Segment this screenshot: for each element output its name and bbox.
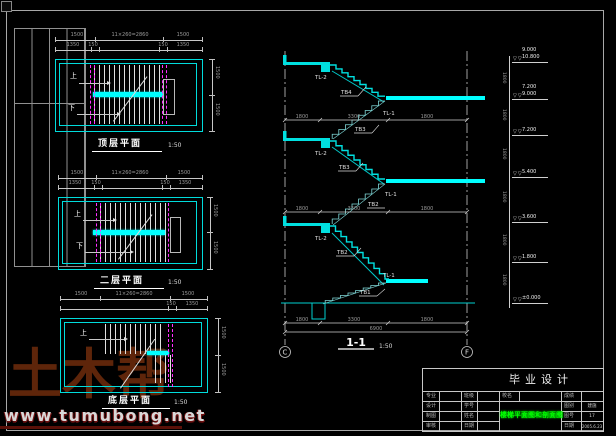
flight-label-leader [377,289,385,296]
foundation-pedestal [312,303,325,319]
dim-tick [215,318,221,319]
field-label: 审核 [426,424,436,429]
level-step-dim: 1800 [501,274,506,285]
field-label: 日期 [464,424,474,429]
title-block-line [461,391,462,431]
dim-text: 1500 [220,363,225,376]
field-label: 学号 [464,404,474,409]
stair-rail-outline [163,79,175,115]
axis-line-magenta [168,324,169,387]
level-marker-line [512,177,548,178]
stair-flight-cut [330,65,385,96]
field-label: 专业 [426,394,436,399]
dim-text: 1500 [66,292,96,297]
flight-label: TB2 [367,202,379,208]
axis-line-magenta [172,324,173,387]
dim-text: 1500 [220,326,225,339]
up-arrow-head [107,81,111,85]
stair-landing-bar [93,92,163,97]
dim-tick [60,306,61,311]
dim-text: 1500 [168,33,198,38]
cad-drawing-canvas: 土木帮 上 下 1500 11×260=2860 1500 1350 150 1… [0,0,616,436]
dim-text: 1800 [421,206,434,212]
dim-tick [215,392,221,393]
landing-slab [386,96,485,100]
dim-line [60,309,208,310]
level-marker-line [512,262,548,263]
axis-line-magenta [168,203,169,262]
stair-rail-outline [170,217,181,253]
level-value: 1.800 [522,255,536,260]
floor-slab [283,138,330,148]
stair-treads-lower [155,355,173,383]
section-dim-bottom [283,321,469,325]
dim-text: 1800 [421,114,434,120]
field-value: 建施 [582,404,602,409]
dim-text: 6900 [370,326,383,332]
flight-label: TB4 [340,90,352,96]
flight-label: TB2 [336,250,348,256]
stair-stringer [323,283,386,304]
field-label: 班级 [464,394,474,399]
watermark-underline [0,426,182,429]
plan-scale: 1:50 [168,143,181,149]
plan-scale: 1:50 [168,280,181,286]
dim-text: 1500 [212,204,217,217]
dim-text: 1800 [296,114,309,120]
stair-landing-bar [93,230,165,235]
field-label: 图别 [564,404,574,409]
plan-ground-floor: 上 [60,318,208,393]
level-marker-line [512,303,548,304]
plan-title: 二层平面 [100,277,144,286]
dim-tick [209,59,215,60]
up-label: 上 [74,211,81,218]
level-step-dim: 1800 [501,72,506,83]
floor-slab-stub [283,216,287,223]
dim-text: 1350 [58,43,88,48]
flight-label: TB3 [354,127,366,133]
dim-line [58,178,203,179]
dim-line [60,299,208,300]
level-marker-line [512,135,548,136]
dim-tick [58,185,59,190]
dim-line [58,188,203,189]
plan-title-underline [94,288,164,289]
grid-bubble-right-label: F [465,349,469,357]
section-dim-mid [283,210,469,214]
dim-tick [209,131,215,132]
dim-text: 1500 [214,103,219,116]
level-value-upper: 7.200 [522,85,536,90]
stair-soffit [332,233,384,285]
ucs-corner-icon [1,1,12,12]
level-step-dim: 1800 [501,234,506,245]
title-block-line [439,391,440,431]
dim-line [55,40,203,41]
axis-line-magenta [96,203,97,262]
up-arrow-line [89,339,124,340]
dim-text: 1500 [62,33,92,38]
plan-title: 底层平面 [108,397,152,406]
field-value: 17 [582,414,602,419]
title-block-line [477,391,478,431]
dim-text: 1800 [296,206,309,212]
level-value: 10.800 [522,55,540,60]
dim-tick [55,47,56,52]
level-value: 3.600 [522,215,536,220]
dim-text: 150 [86,43,100,48]
dim-tick [202,175,203,180]
dim-text: 150 [89,181,103,186]
stair-flight-cut [330,141,385,179]
floor-slab [283,223,330,233]
up-arrow-line [79,83,107,84]
floor-slab-stub [283,55,287,62]
plan-second-floor: 上 下 [58,197,203,270]
up-arrow-line [83,220,113,221]
dim-tick [58,175,59,180]
dim-text: 1500 [170,171,198,176]
dim-text: 1500 [212,241,217,254]
dim-text: 1500 [173,292,203,297]
dim-tick [215,355,221,356]
down-label: 下 [76,243,83,250]
dim-text: 1350 [178,302,206,307]
dim-tick [100,296,101,301]
level-value: ±0.000 [522,296,541,301]
dim-tick [209,95,215,96]
elevation-axis-line [509,56,510,308]
floor-slab-stub [283,131,287,138]
dim-text: 1800 [296,317,309,323]
level-marker-line [512,62,548,63]
dim-tick [202,185,203,190]
title-block-line [561,411,603,412]
dim-tick [207,197,213,198]
beam-label: TL-2 [314,236,327,242]
dim-tick [207,296,208,301]
dim-text: 1500 [214,66,219,79]
down-label: 下 [68,105,75,112]
level-value: 7.200 [522,128,536,133]
dim-text: 1500 [62,171,92,176]
beam-label: TL-1 [382,273,395,279]
field-label: 图号 [564,414,574,419]
dim-text: 3300 [348,114,361,120]
axis-line-magenta [94,65,95,124]
level-step-dim: 1800 [501,191,506,202]
flight-label-leader [372,125,379,133]
up-arrow-head [124,337,128,341]
dim-tick [202,37,203,42]
title-block-line [423,391,603,392]
dim-tick [207,306,208,311]
plan-title: 顶层平面 [98,140,142,149]
dim-tick [207,269,213,270]
field-value: 2005.6.23 [581,424,603,429]
up-label: 上 [70,73,77,80]
field-label: 制图 [426,414,436,419]
title-block-line [423,401,603,402]
watermark-url: www.tumubong.net [4,407,206,425]
dim-text: 150 [164,302,178,307]
dim-text: 3300 [348,317,361,323]
beam-label: TL-2 [314,75,327,81]
beam-label: TL-2 [314,151,327,157]
dim-text: 1800 [421,317,434,323]
stair-section-1-1: C F TL-2 TL-2 TL-2 TL-1 T [275,45,487,363]
level-marker-line [512,99,548,100]
dim-text: 11×260=2860 [104,292,164,297]
stair-soffit [332,71,384,102]
field-label: 设计 [426,404,436,409]
axis-line-magenta [100,203,101,262]
grid-bubble-left-label: C [283,349,288,357]
dim-text: 11×260=2860 [100,171,160,176]
dim-tick [207,232,213,233]
beam-label: TL-1 [382,111,395,117]
drawing-name: 楼梯平面图和剖面图 [500,411,560,419]
dim-text: 1350 [170,181,200,186]
beam-label: TL-1 [384,192,397,198]
flight-label: TB1 [359,290,371,296]
floor-slab [283,62,330,72]
flight-label: TB3 [338,165,350,171]
title-block-line [561,421,603,422]
up-label: 上 [80,330,87,337]
landing-slab [386,179,485,183]
field-label: 日期 [564,424,574,429]
title-block-line [519,391,520,401]
down-arrow-head [130,250,134,254]
axis-line-magenta [90,65,91,124]
dim-text: 1350 [60,181,90,186]
dim-tick [60,296,61,301]
dim-tick [55,37,56,42]
section-scale: 1:50 [379,343,393,350]
level-marker-line [512,222,548,223]
dim-text: 1350 [168,43,198,48]
down-arrow-line [77,114,117,115]
dim-text: 3300 [348,206,361,212]
level-step-dim: 1800 [501,148,506,159]
plan-top-floor: 上 下 [55,59,203,132]
elevation-level-strip: ▽▽ 10.800 9.000 ▽▽ 9.000 7.200 ▽▽ 7.200 … [500,50,612,320]
up-arrow-head [113,218,117,222]
dim-line-vertical [210,197,211,270]
school-label: 校名 [502,394,512,399]
section-dim-upper [283,118,469,122]
level-value: 9.000 [522,92,536,97]
level-value-upper: 9.000 [522,48,536,53]
dim-text: 11×260=2860 [100,33,160,38]
project-title: 毕业设计 [509,374,573,386]
dim-line [55,50,203,51]
dim-tick [202,47,203,52]
title-block: 毕业设计 专业 班级 设计 学号 制图 姓名 审核 日期 校名 楼梯平面图和剖面… [422,368,604,432]
stair-landing-bar [147,351,169,355]
level-value: 5.400 [522,170,536,175]
plan-title-underline [92,151,162,152]
section-title: 1-1 [346,336,366,349]
landing-slab [386,279,428,283]
field-label: 成绩 [564,394,574,399]
field-label: 姓名 [464,414,474,419]
level-step-dim: 1800 [501,109,506,120]
